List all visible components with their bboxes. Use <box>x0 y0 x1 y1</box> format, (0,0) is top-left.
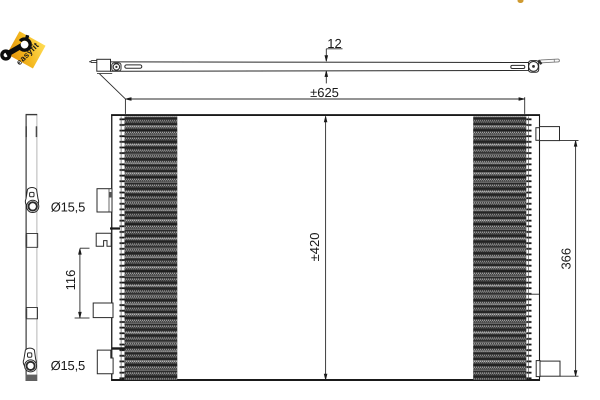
svg-text:Ø15,5: Ø15,5 <box>51 200 85 215</box>
svg-text:±420: ±420 <box>307 233 322 262</box>
svg-text:Ø15,5: Ø15,5 <box>51 358 85 373</box>
svg-text:116: 116 <box>63 270 78 291</box>
svg-text:12: 12 <box>327 36 341 51</box>
svg-text:±625: ±625 <box>310 85 339 100</box>
svg-text:366: 366 <box>559 248 574 270</box>
